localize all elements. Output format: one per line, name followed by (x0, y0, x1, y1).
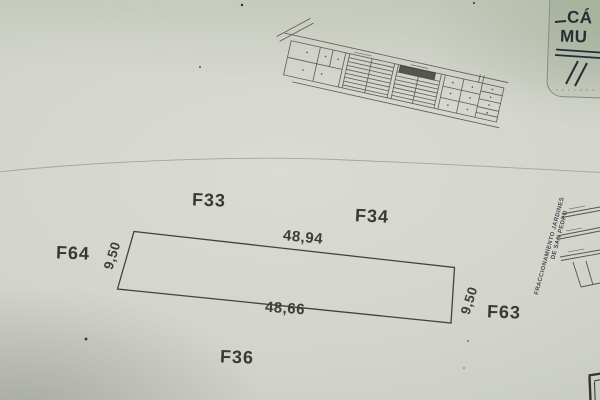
lot-label-f63: F63 (487, 301, 522, 323)
scanned-survey-plan-photo: · · · · · · · F33 F34 F64 F63 F36 48,94 … (0, 0, 600, 400)
paper-crease (0, 158, 600, 172)
lot-dots (301, 48, 493, 115)
bottom-right-frame-corner (589, 374, 600, 400)
plan-linework: · · · · · · · (0, 0, 600, 400)
lot-label-f33: F33 (192, 189, 227, 211)
dimension-bottom: 48,66 (264, 299, 305, 319)
lot-label-f36: F36 (220, 346, 255, 368)
lot-label-f34: F34 (354, 205, 389, 228)
lot-label-f64: F64 (56, 242, 91, 264)
stamp-line2: MU (560, 27, 588, 48)
stamp-microtext: · · · · · · · (556, 88, 596, 94)
inset-block-map (268, 12, 514, 128)
stamp-line1: CÁ (567, 8, 593, 29)
